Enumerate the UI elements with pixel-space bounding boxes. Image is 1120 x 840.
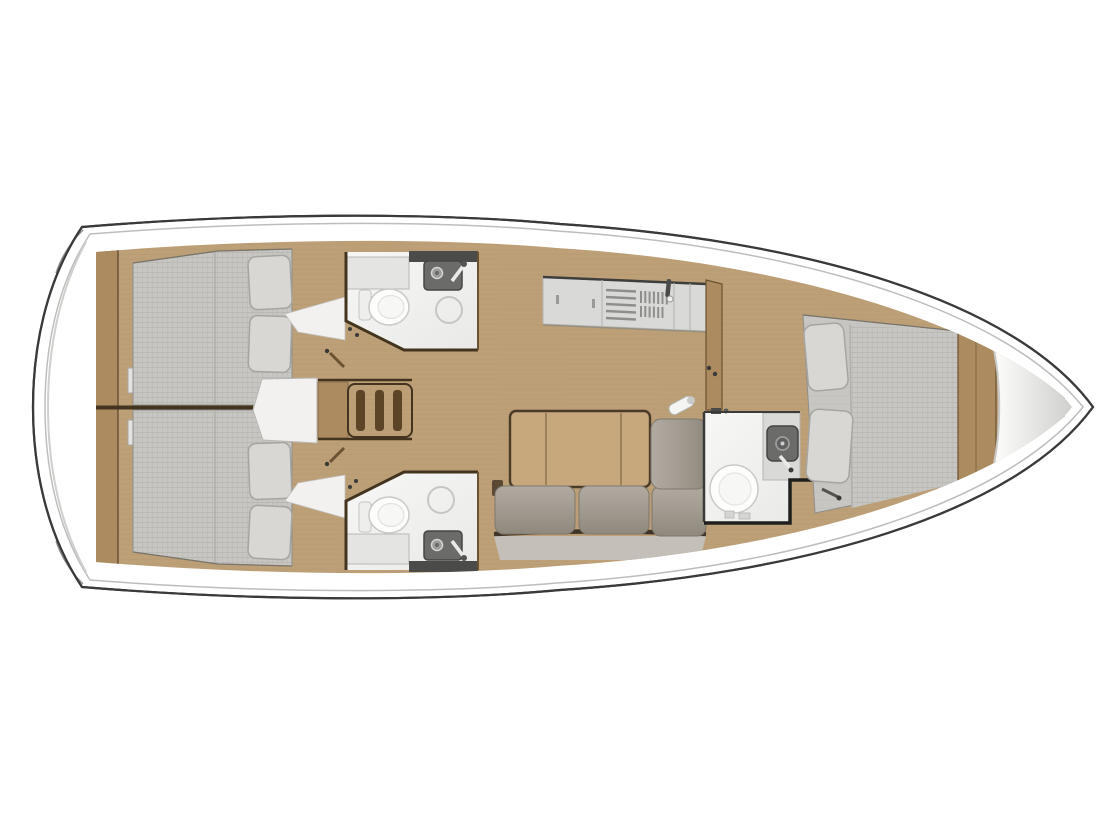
- door-hinge: [354, 479, 358, 483]
- cabinet-handle: [556, 295, 559, 304]
- toilet-base: [725, 511, 734, 518]
- forward-cabin: [803, 315, 958, 513]
- toilet-base: [739, 513, 750, 519]
- toilet-seat: [378, 504, 404, 527]
- faucet-tip: [789, 468, 794, 473]
- companionway-landing: [253, 378, 317, 443]
- yacht-layout-plan: [0, 0, 1120, 840]
- toilet-seat: [719, 473, 751, 505]
- dark-shelf: [409, 561, 478, 572]
- pillow: [248, 505, 293, 560]
- vanity-counter: [347, 534, 409, 564]
- settee-cushion-corner: [652, 486, 706, 536]
- faucet-tip: [461, 261, 467, 267]
- stair-slot: [356, 390, 365, 431]
- door-hinge: [348, 485, 352, 489]
- settee-cushion: [579, 486, 649, 534]
- door-hinge: [348, 327, 352, 331]
- pillow: [248, 315, 292, 372]
- pillow: [248, 442, 292, 499]
- sink-drain-dot: [781, 442, 785, 446]
- salon-table: [510, 411, 650, 487]
- hatch-handle-knob: [837, 496, 842, 501]
- stair-slot: [393, 390, 402, 431]
- pillow: [806, 409, 854, 484]
- galley-faucet-base: [667, 296, 673, 302]
- vanity-counter: [347, 257, 409, 289]
- companionway: [253, 378, 412, 443]
- stair-base: [318, 382, 348, 438]
- layout-plan-canvas: [0, 0, 1120, 840]
- settee-cushion-side: [651, 419, 707, 489]
- door-hinge: [713, 372, 717, 376]
- sink-drain-dot: [435, 271, 439, 275]
- vberth-mattress-textured: [850, 325, 958, 508]
- bow-bulkhead: [958, 326, 996, 488]
- pillow: [803, 322, 849, 391]
- door-hinge: [707, 366, 711, 370]
- door-hinge: [355, 333, 359, 337]
- faucet-tip: [461, 555, 467, 561]
- pillow: [248, 255, 293, 310]
- interior: [90, 225, 1072, 595]
- galley-bulkhead: [706, 280, 722, 410]
- settee-cushion: [495, 486, 575, 534]
- toilet-seat: [378, 296, 404, 319]
- door-hinge: [325, 462, 329, 466]
- door-hinge: [325, 349, 329, 353]
- sink-drain-dot: [435, 543, 439, 547]
- stair-slot: [375, 390, 384, 431]
- cabinet-handle: [592, 299, 595, 308]
